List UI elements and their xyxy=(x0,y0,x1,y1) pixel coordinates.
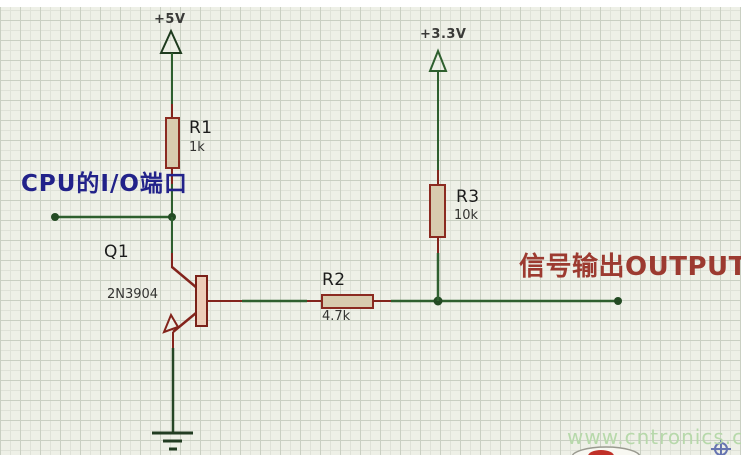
q1-ref-label[interactable]: Q1 xyxy=(104,244,129,261)
junction-dot-input xyxy=(51,213,59,221)
q1-value-label[interactable]: 2N3904 xyxy=(107,288,158,301)
r1-ref-label[interactable]: R1 xyxy=(189,120,213,137)
r3-value-label[interactable]: 10k xyxy=(454,209,478,222)
junction-dot-output-end xyxy=(614,297,622,305)
resistor-r3[interactable] xyxy=(430,185,445,237)
wire-cpu-input[interactable] xyxy=(51,213,176,221)
r2-ref-label[interactable]: R2 xyxy=(322,272,346,289)
power-symbol-5v[interactable] xyxy=(161,31,181,104)
resistor-r2[interactable] xyxy=(322,295,373,308)
power-symbol-3v3[interactable] xyxy=(430,51,446,170)
schematic-canvas[interactable]: +5V +3.3V R1 1k Q1 2N3904 R2 4.7k R3 10k… xyxy=(0,0,755,455)
transistor-q1[interactable] xyxy=(164,253,242,332)
r2-value-label[interactable]: 4.7k xyxy=(322,310,350,323)
q1-body-bar[interactable] xyxy=(196,276,207,326)
resistor-r1[interactable] xyxy=(166,118,179,168)
q1-collector-lead xyxy=(172,267,197,288)
r1-value-label[interactable]: 1k xyxy=(189,141,205,154)
ground-symbol[interactable] xyxy=(152,433,193,449)
input-annotation[interactable]: CPU的I/O端口 xyxy=(21,173,188,196)
schematic-graphics xyxy=(0,0,755,455)
output-annotation[interactable]: 信号输出OUTPUT xyxy=(519,254,747,280)
power-label-3v3[interactable]: +3.3V xyxy=(420,28,466,41)
canvas-edge-right xyxy=(741,0,755,455)
watermark-text: www.cntronics.com xyxy=(567,427,755,447)
power-label-5v[interactable]: +5V xyxy=(154,13,186,26)
r3-ref-label[interactable]: R3 xyxy=(456,189,480,206)
